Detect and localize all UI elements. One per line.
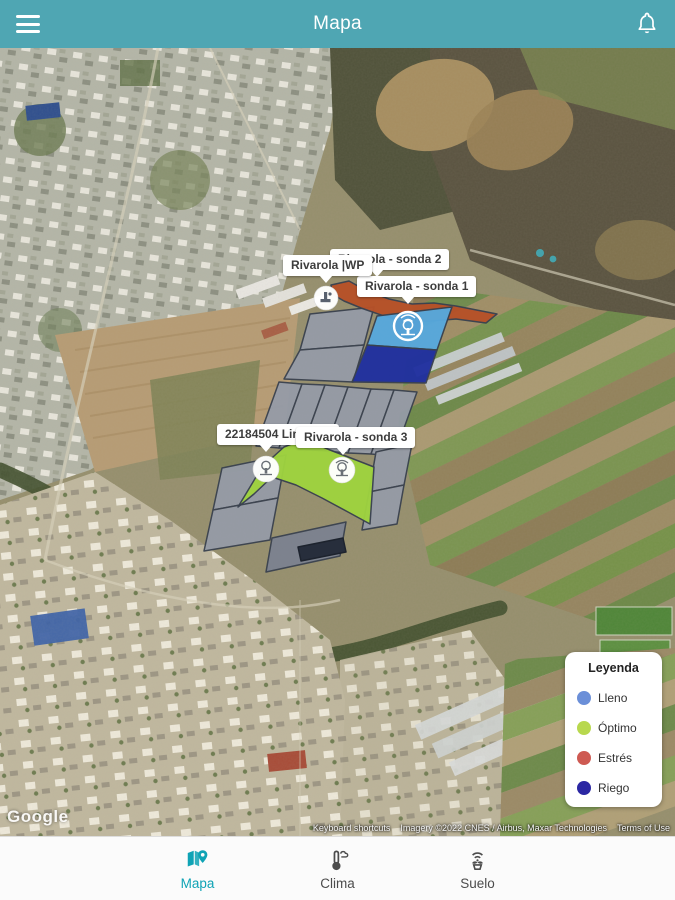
legend-item-riego: Riego <box>565 781 662 795</box>
legend-title: Leyenda <box>565 661 662 675</box>
lleno-color-dot <box>577 691 591 705</box>
imagery-credit: Imagery ©2022 CNES / Airbus, Maxar Techn… <box>400 823 607 833</box>
legend-item-estres: Estrés <box>565 751 662 765</box>
plant-signal-icon <box>464 847 491 873</box>
map-with-pin-icon <box>184 847 211 873</box>
terms-of-use-link[interactable]: Terms of Use <box>617 823 670 833</box>
field-label-wp[interactable]: Rivarola |WP <box>283 255 372 276</box>
marker-sonda3-tree-icon[interactable] <box>329 457 355 483</box>
map-canvas[interactable]: Rivarola - sonda 2 Rivarola - sonda 1 Ri… <box>0 48 675 836</box>
keyboard-shortcuts-link[interactable]: Keyboard shortcuts <box>313 823 391 833</box>
optimo-color-dot <box>577 721 591 735</box>
app-bar: Mapa <box>0 0 675 48</box>
marker-sonda1-tree-icon[interactable] <box>394 312 422 340</box>
thermometer-cloud-icon <box>324 847 351 873</box>
legend-item-lleno: Lleno <box>565 691 662 705</box>
legend-panel: Leyenda Lleno Óptimo Estrés Riego <box>565 652 662 807</box>
tab-suelo[interactable]: Suelo <box>443 837 513 900</box>
notifications-bell-icon[interactable] <box>635 11 659 37</box>
marker-limones-icon[interactable] <box>253 456 279 482</box>
tab-clima[interactable]: Clima <box>303 837 373 900</box>
mobile-app: Mapa <box>0 0 675 900</box>
page-title: Mapa <box>0 13 675 35</box>
parcel-riego[interactable] <box>352 345 437 383</box>
field-label-sonda3[interactable]: Rivarola - sonda 3 <box>296 427 415 448</box>
estres-color-dot <box>577 751 591 765</box>
menu-icon[interactable] <box>16 15 40 33</box>
marker-water-pump-icon[interactable] <box>314 286 338 310</box>
tab-mapa[interactable]: Mapa <box>163 837 233 900</box>
riego-color-dot <box>577 781 591 795</box>
map-attribution: Keyboard shortcuts Imagery ©2022 CNES / … <box>313 823 670 833</box>
legend-item-optimo: Óptimo <box>565 721 662 735</box>
field-label-sonda1[interactable]: Rivarola - sonda 1 <box>357 276 476 297</box>
google-watermark[interactable]: Google <box>7 807 69 827</box>
bottom-navigation: Mapa Clima Suelo <box>0 836 675 900</box>
